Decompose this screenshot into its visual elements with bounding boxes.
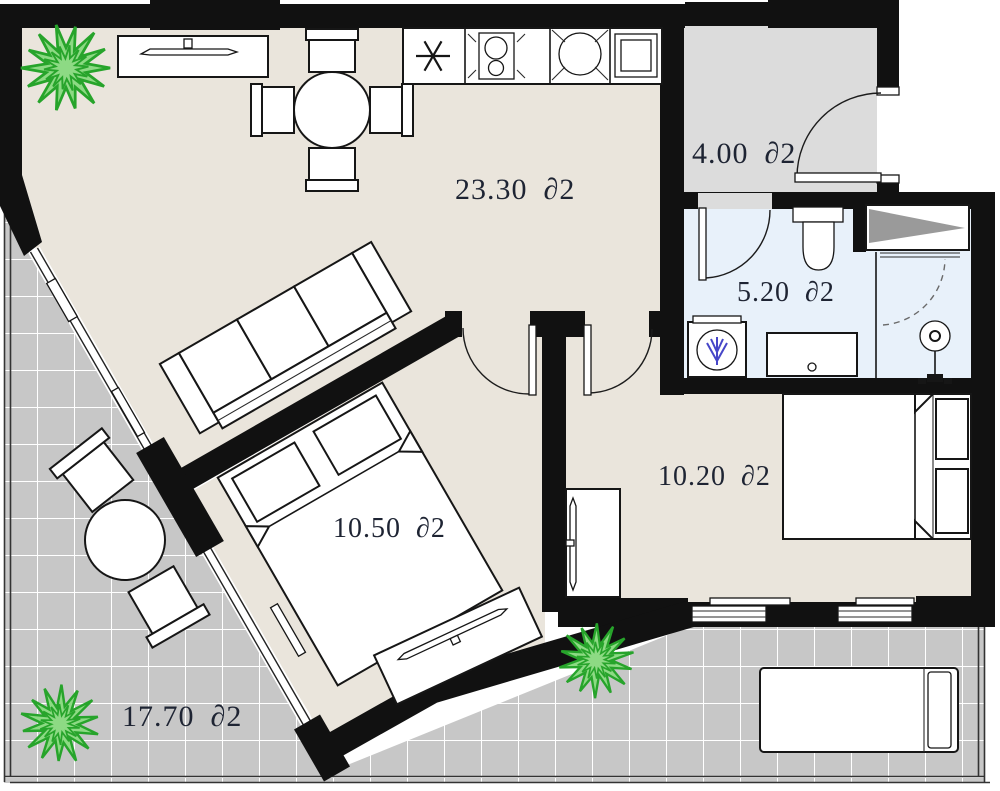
patio-table	[85, 500, 165, 580]
terrace-area-label: 17.70 ∂2	[122, 700, 242, 733]
bedroom-second-door-opening	[585, 311, 649, 337]
dining-chair	[370, 84, 413, 136]
bedroom-second-area-label: 10.20 ∂2	[658, 461, 771, 492]
entry-opening	[877, 93, 899, 177]
dining-chair	[251, 84, 294, 136]
hall-area-label: 4.00 ∂2	[692, 137, 796, 170]
dining-table	[294, 72, 370, 148]
floor-plan-page: 23.30 ∂2 4.00 ∂2 5.20 ∂2 10.20 ∂2 10.50 …	[0, 0, 1000, 791]
oven	[615, 34, 657, 77]
tv-console-bedroom-second	[566, 489, 620, 597]
bathroom-area-label: 5.20 ∂2	[737, 277, 835, 308]
sun-lounger	[760, 668, 958, 752]
pillow	[936, 399, 968, 459]
dining-chair	[306, 29, 358, 72]
bedroom-main-door-opening	[462, 311, 530, 337]
bathroom-vanity	[767, 333, 857, 376]
bathroom-door-opening	[698, 193, 772, 209]
dining-chair	[306, 148, 358, 191]
bedroom-main-area-label: 10.50 ∂2	[333, 513, 446, 544]
kitchen-counter	[403, 28, 662, 84]
living-kitchen-area-label: 23.30 ∂2	[455, 173, 575, 206]
pillow	[936, 469, 968, 533]
floor-plan-canvas: 23.30 ∂2 4.00 ∂2 5.20 ∂2 10.20 ∂2 10.50 …	[0, 0, 1000, 791]
double-bed-second	[783, 394, 971, 539]
tv-icon	[141, 49, 237, 55]
duct-niche	[866, 205, 969, 250]
washing-machine	[688, 316, 746, 377]
tv-console-living	[118, 36, 268, 77]
